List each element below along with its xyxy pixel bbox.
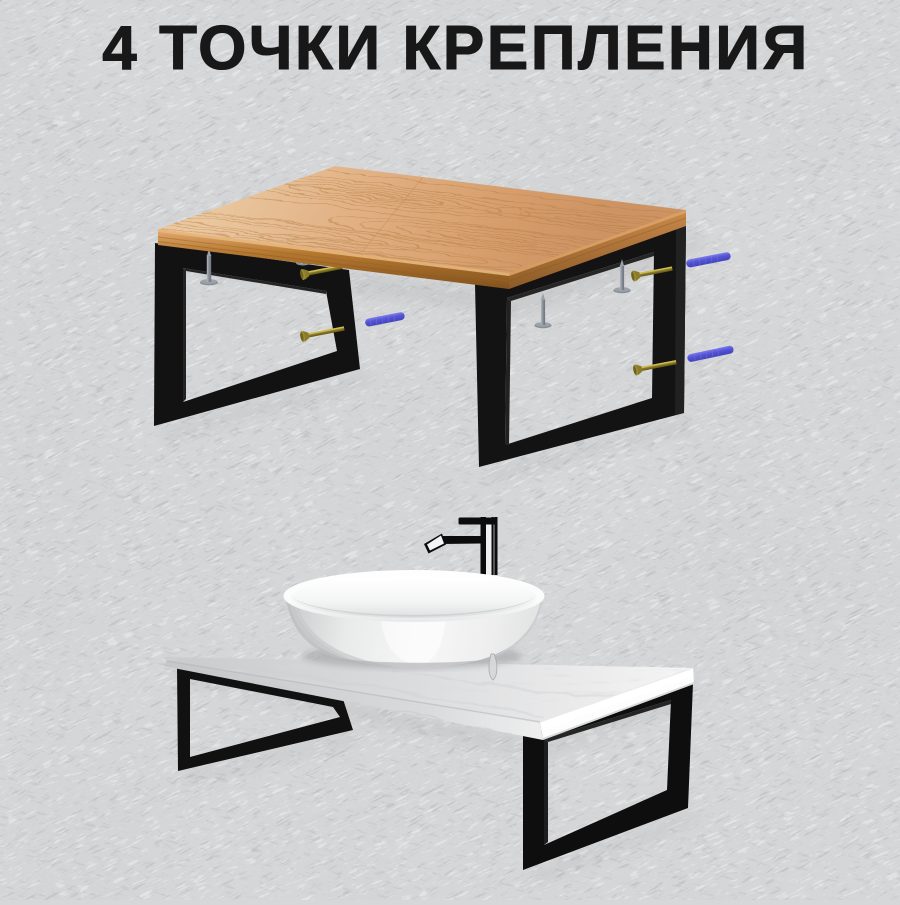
- svg-text:4 ТОЧКИ КРЕПЛЕНИЯ: 4 ТОЧКИ КРЕПЛЕНИЯ: [102, 14, 810, 83]
